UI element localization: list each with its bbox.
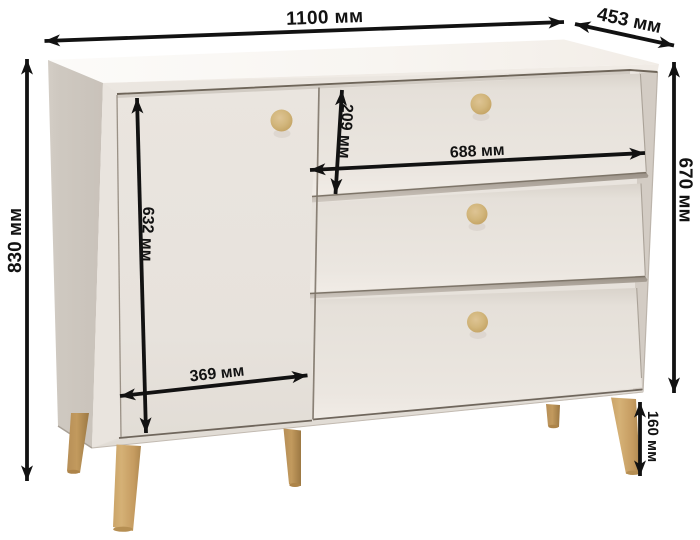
svg-text:830 мм: 830 мм [5,208,26,273]
svg-text:670 мм: 670 мм [675,157,696,222]
svg-text:453 мм: 453 мм [595,4,663,38]
svg-text:1100 мм: 1100 мм [286,6,364,30]
svg-text:632 мм: 632 мм [138,206,156,261]
svg-text:688 мм: 688 мм [449,142,505,162]
svg-text:209 мм: 209 мм [336,103,356,159]
svg-text:160 мм: 160 мм [644,411,661,462]
